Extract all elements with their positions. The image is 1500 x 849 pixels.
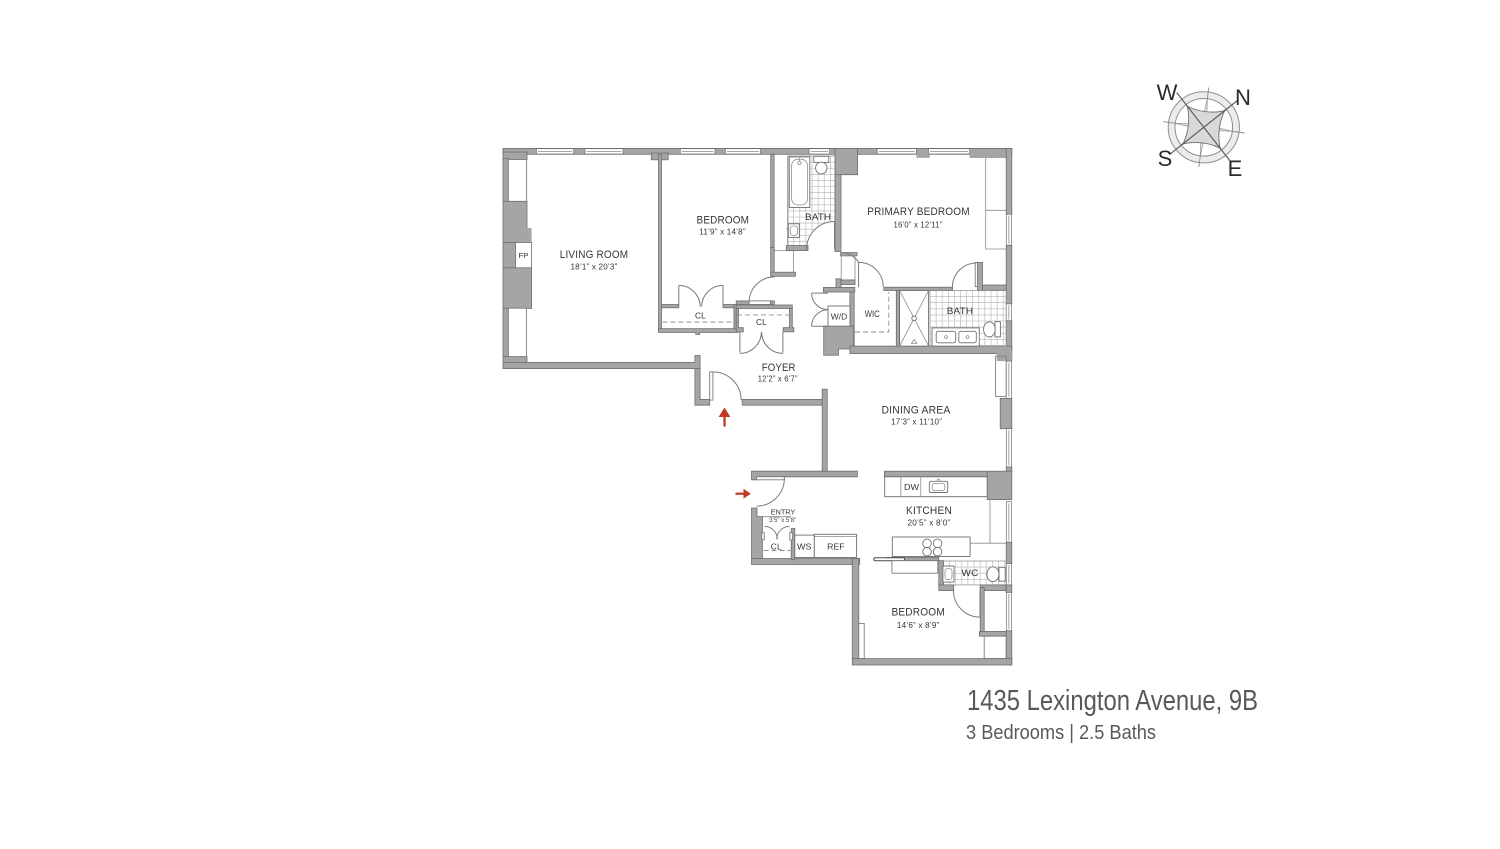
svg-text:S: S [1158,146,1173,171]
svg-text:3 Bedrooms | 2.5 Baths: 3 Bedrooms | 2.5 Baths [966,722,1156,744]
svg-text:W: W [1157,80,1178,105]
svg-text:BEDROOM: BEDROOM [891,607,945,619]
svg-text:FOYER: FOYER [762,362,796,374]
svg-text:ENTRY: ENTRY [771,507,796,516]
svg-text:CL: CL [695,311,706,321]
svg-text:CL: CL [756,317,767,327]
svg-text:11’9” x 14’8”: 11’9” x 14’8” [699,227,746,236]
svg-text:LIVING ROOM: LIVING ROOM [560,249,629,261]
svg-text:3’5” x 5’8”: 3’5” x 5’8” [769,518,796,524]
svg-text:W/D: W/D [831,312,848,322]
svg-text:BATH: BATH [805,212,831,223]
svg-text:17’3” x 11’10”: 17’3” x 11’10” [891,418,942,427]
svg-text:16’0” x 12’11”: 16’0” x 12’11” [894,221,943,230]
svg-text:FP: FP [519,253,529,260]
svg-text:BEDROOM: BEDROOM [697,215,750,227]
svg-text:DINING AREA: DINING AREA [882,405,951,417]
svg-text:WC: WC [962,568,979,579]
svg-text:DW: DW [904,482,919,492]
svg-text:12’2” x 6’7”: 12’2” x 6’7” [758,375,798,384]
svg-text:PRIMARY BEDROOM: PRIMARY BEDROOM [867,206,970,218]
svg-text:N: N [1235,85,1251,110]
svg-text:20’5” x 8’0”: 20’5” x 8’0” [908,519,951,528]
svg-text:REF: REF [827,542,845,552]
svg-text:CL: CL [771,542,782,552]
svg-text:WS: WS [797,542,812,552]
svg-text:E: E [1228,156,1243,181]
svg-text:KITCHEN: KITCHEN [906,505,952,517]
svg-text:18’1” x 20’3”: 18’1” x 20’3” [571,262,618,271]
svg-text:WIC: WIC [865,309,880,319]
svg-text:1435 Lexington Avenue, 9B: 1435 Lexington Avenue, 9B [967,685,1258,717]
svg-text:BATH: BATH [947,306,974,317]
svg-text:14’6” x 8’9”: 14’6” x 8’9” [897,621,940,630]
